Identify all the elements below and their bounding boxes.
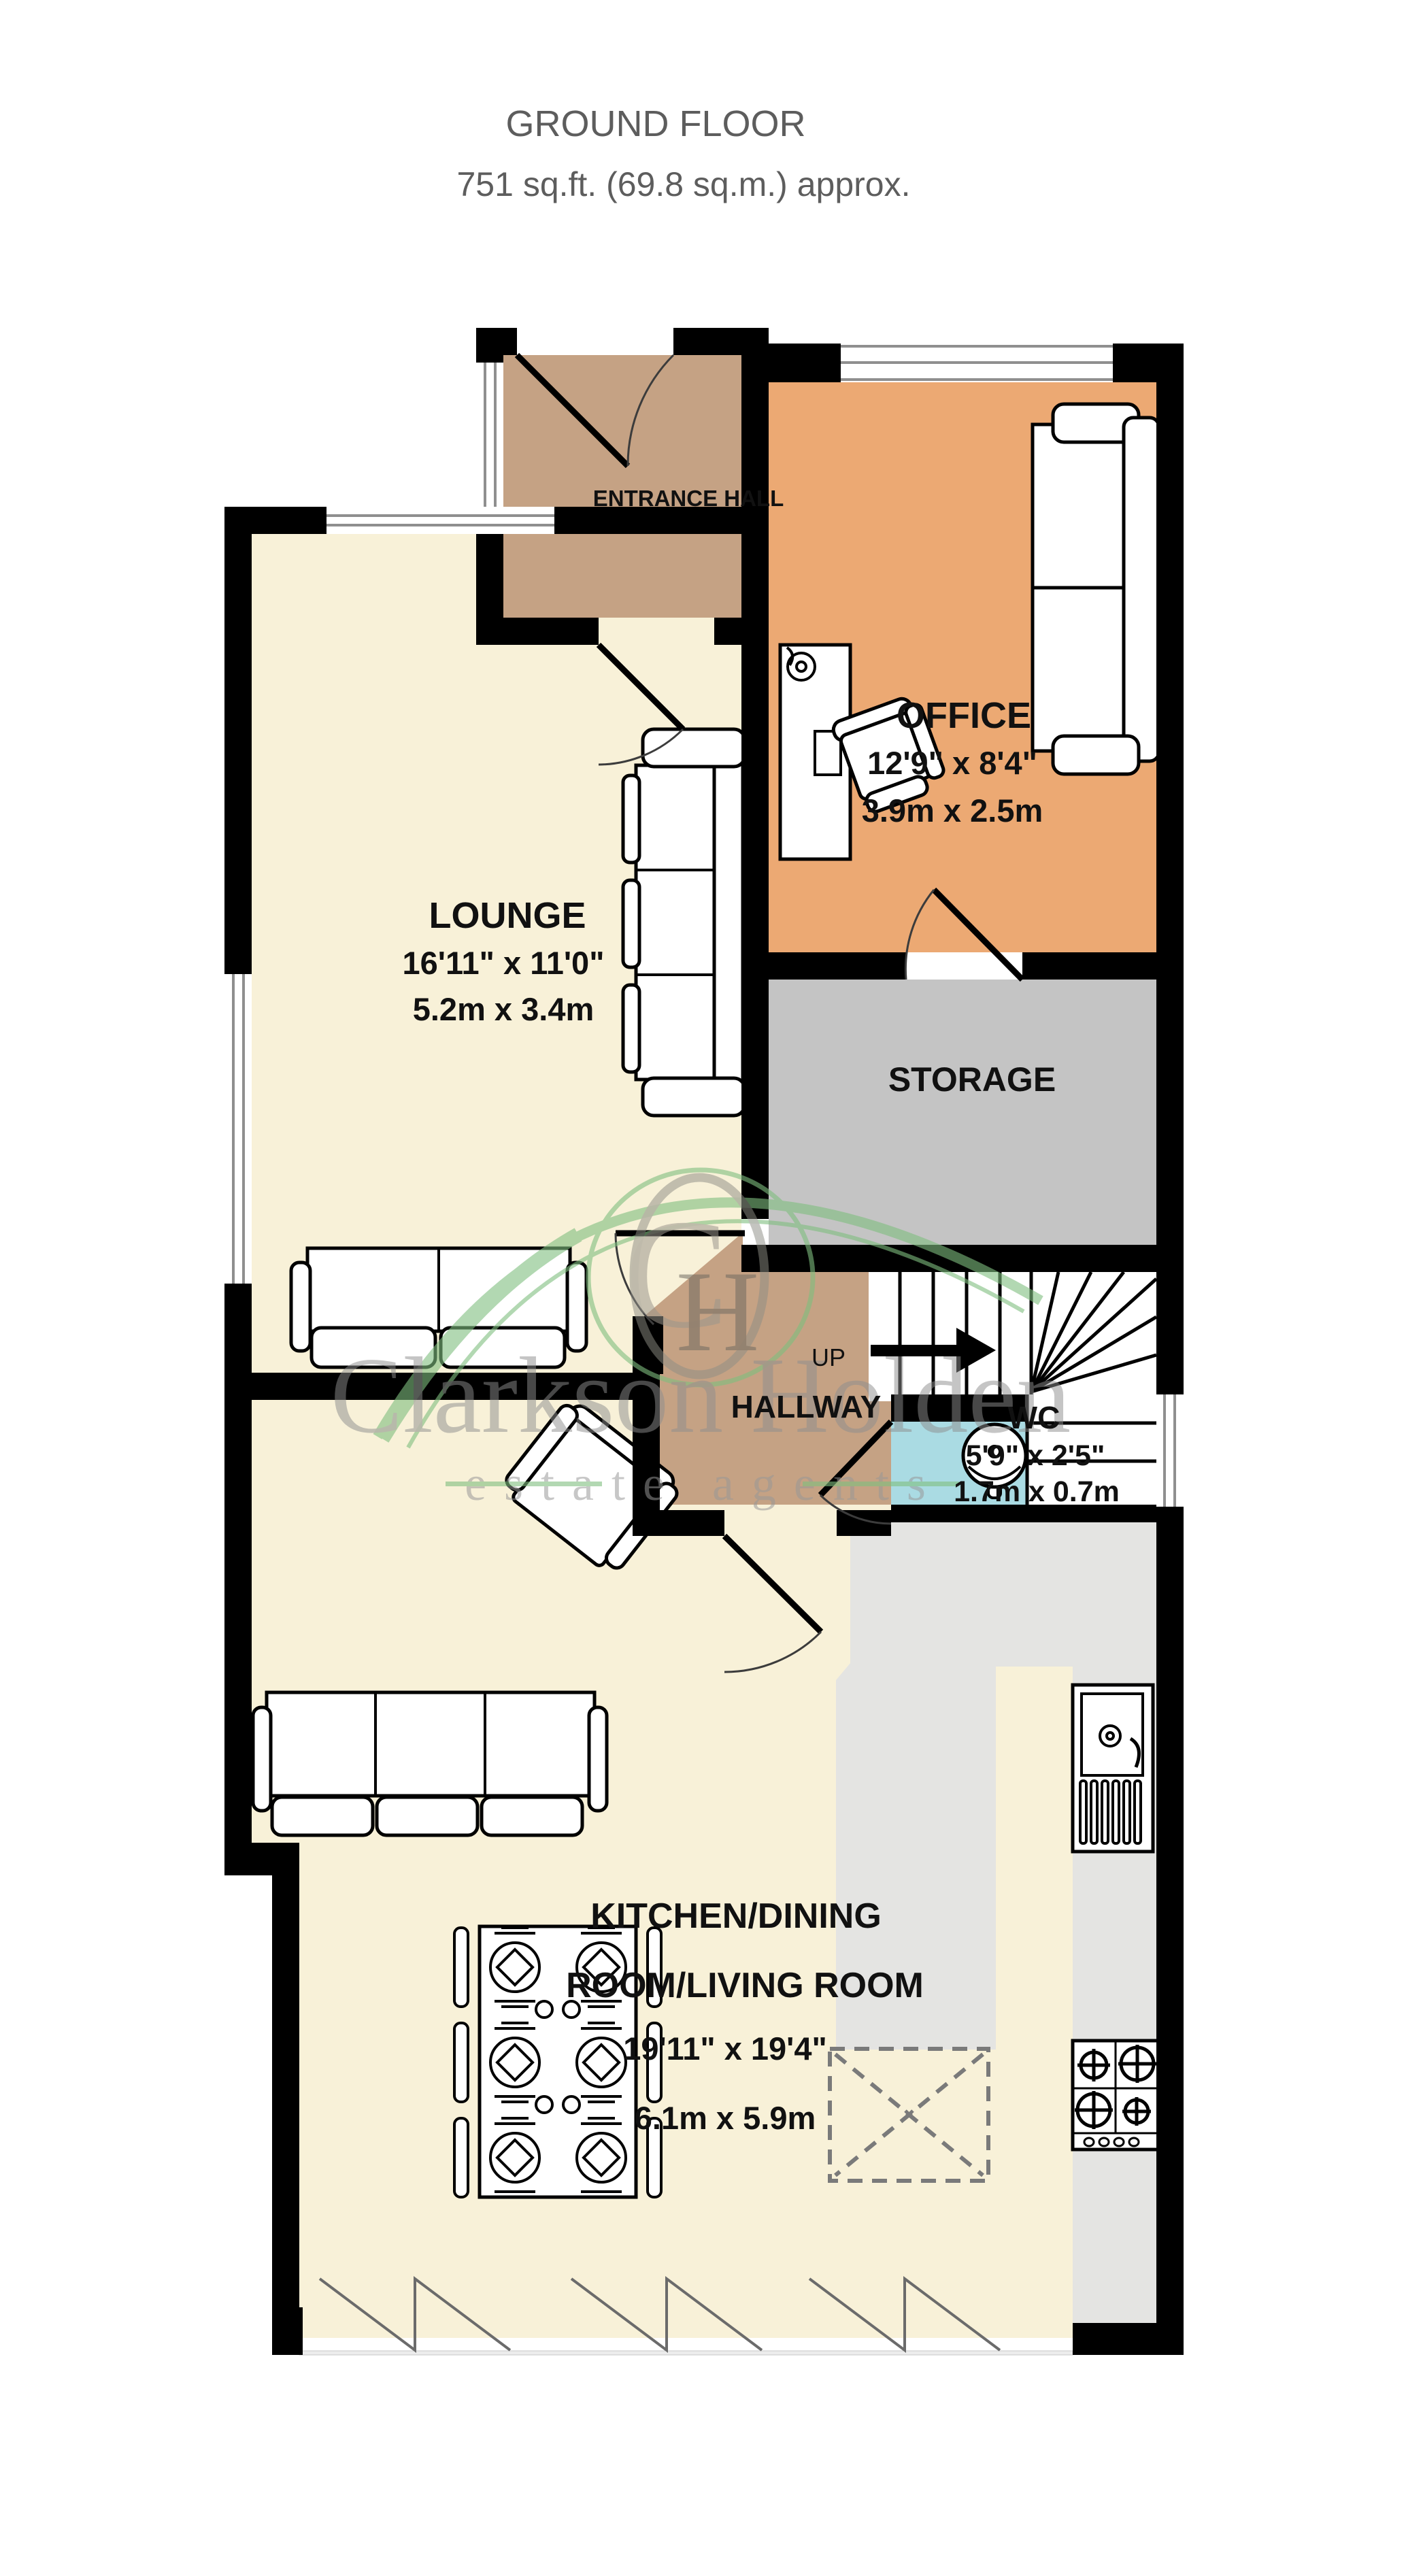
label-hallway: HALLWAY bbox=[731, 1389, 882, 1424]
lounge-sofa-vertical bbox=[623, 729, 745, 1116]
watermark-name: Clarkson Holden bbox=[331, 1335, 1071, 1456]
label-kitchen-line2: ROOM/LIVING ROOM bbox=[566, 1966, 924, 2005]
window-lounge-top bbox=[327, 507, 554, 534]
window-office-top bbox=[841, 344, 1113, 382]
kitchen-hob bbox=[1073, 2041, 1158, 2150]
kitchen-sofa bbox=[253, 1692, 607, 1835]
label-kitchen-dims-metric: 6.1m x 5.9m bbox=[635, 2100, 816, 2136]
label-lounge: LOUNGE bbox=[429, 895, 586, 936]
watermark-dash-left bbox=[446, 1482, 602, 1486]
label-office-dims-imperial: 12'9" x 8'4" bbox=[867, 745, 1037, 781]
label-wc: WC bbox=[1008, 1400, 1060, 1435]
window-lounge-left bbox=[224, 974, 252, 1284]
kitchen-sink-unit bbox=[1073, 1685, 1153, 1852]
label-lounge-dims-imperial: 16'11" x 11'0" bbox=[403, 945, 605, 981]
office-sofa bbox=[1033, 404, 1159, 774]
label-wc-dims-metric: 1.7m x 0.7m bbox=[954, 1475, 1120, 1508]
page-title: GROUND FLOOR bbox=[505, 103, 805, 144]
window-entrance-left bbox=[476, 363, 503, 524]
label-kitchen-dims-imperial: 19'11" x 19'4" bbox=[623, 2030, 827, 2067]
label-lounge-dims-metric: 5.2m x 3.4m bbox=[413, 991, 595, 1027]
label-office-dims-metric: 3.9m x 2.5m bbox=[862, 792, 1043, 829]
label-storage: STORAGE bbox=[888, 1060, 1056, 1099]
page-subtitle: 751 sq.ft. (69.8 sq.m.) approx. bbox=[457, 165, 911, 203]
label-entrance-hall: ENTRANCE HALL bbox=[593, 486, 784, 511]
office-desk bbox=[780, 645, 850, 859]
label-up: UP bbox=[811, 1343, 846, 1371]
label-wc-dims-imperial: 5'9" x 2'5" bbox=[966, 1439, 1105, 1472]
label-office: OFFICE bbox=[897, 695, 1031, 736]
label-kitchen-line1: KITCHEN/DINING bbox=[590, 1896, 882, 1936]
window-stairs-right bbox=[1156, 1394, 1184, 1507]
watermark-dash-right bbox=[803, 1482, 959, 1486]
room-storage bbox=[769, 980, 1156, 1245]
floorplan: C H Clarkson Holden estate agents GROUND… bbox=[0, 0, 1406, 2576]
